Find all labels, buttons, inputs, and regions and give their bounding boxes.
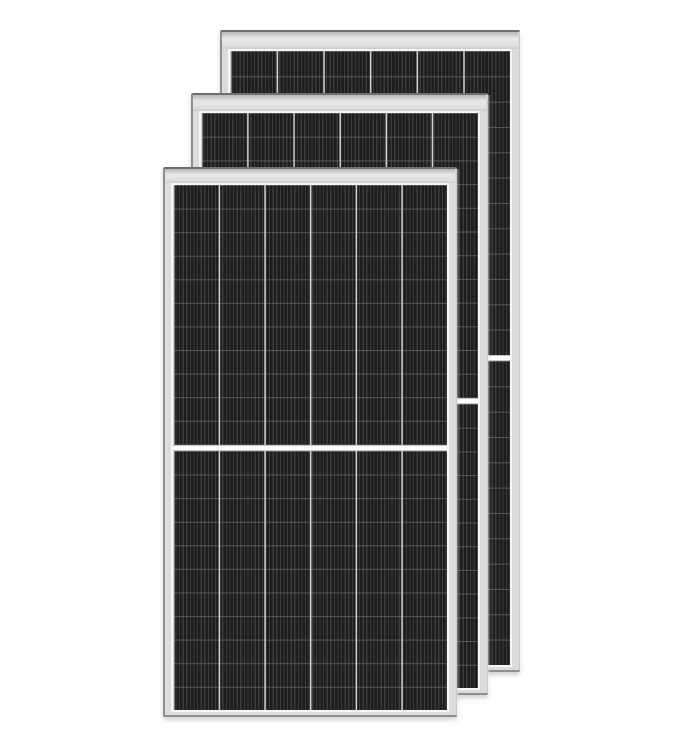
- cells-lower-half: [173, 451, 447, 711]
- cells-upper-half: [173, 185, 447, 445]
- frame-top-profile: [165, 169, 455, 183]
- edge-highlight: [455, 169, 460, 715]
- frame-top-profile: [193, 95, 486, 111]
- solar-panel-front: [163, 167, 457, 717]
- frame-top-profile: [222, 32, 518, 49]
- product-image-canvas: [0, 0, 684, 748]
- cell-matrix: [171, 183, 449, 712]
- edge-highlight: [486, 95, 491, 693]
- edge-highlight: [518, 32, 523, 670]
